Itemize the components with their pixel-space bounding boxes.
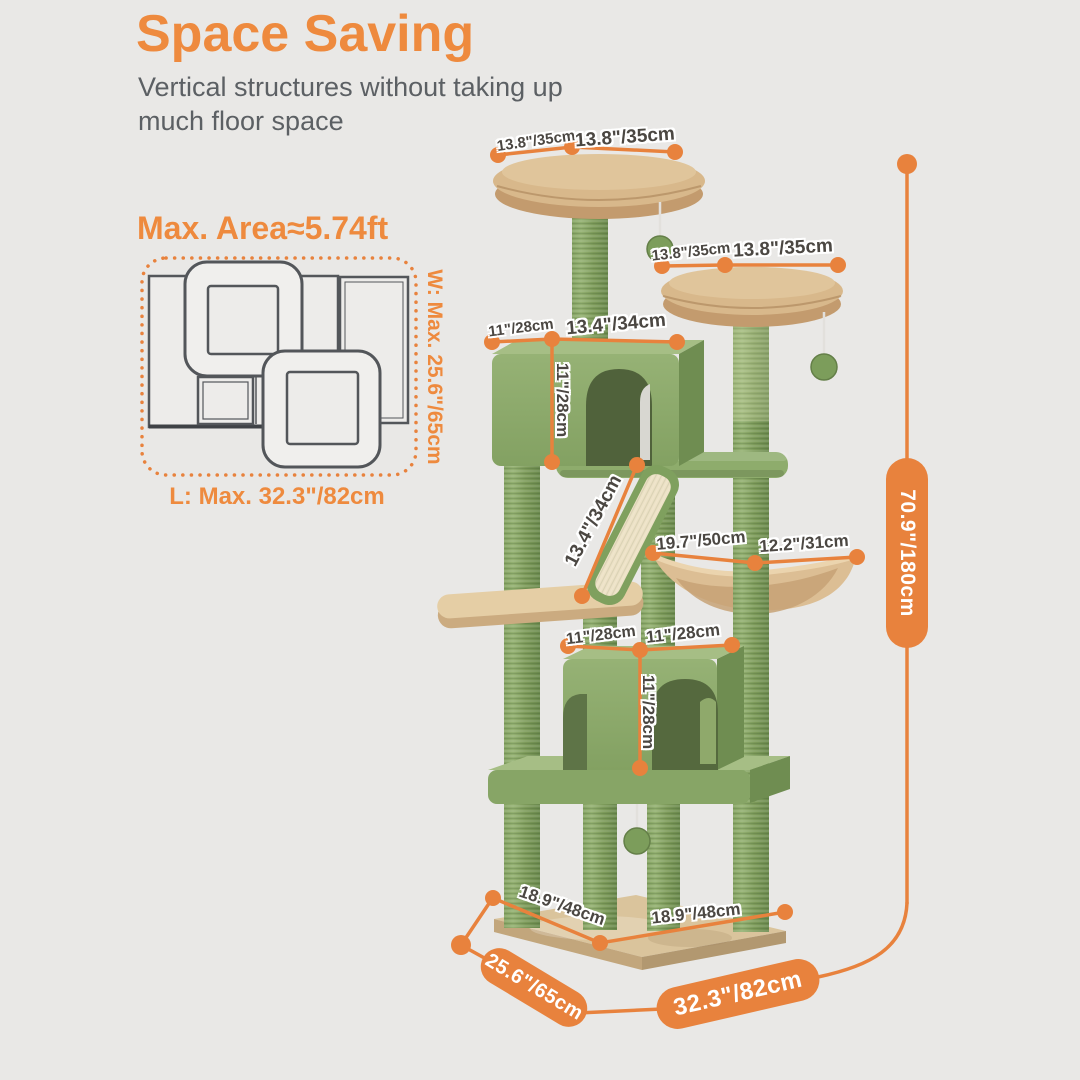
dim-label-lower-condo-height: 11"/28cm bbox=[638, 675, 658, 749]
hanging-ball-2 bbox=[811, 312, 837, 380]
page-title: Space Saving bbox=[136, 4, 474, 64]
footprint-width-label: W: Max. 25.6"/65cm bbox=[422, 269, 446, 464]
top-perch bbox=[493, 154, 705, 219]
infographic-canvas: Space Saving Vertical structures without… bbox=[0, 0, 1080, 1080]
upper-condo bbox=[492, 340, 704, 466]
max-area-title: Max. Area≈5.74ft bbox=[137, 210, 388, 247]
overall-height-badge: 70.9"/180cm bbox=[886, 458, 928, 648]
second-perch bbox=[661, 267, 843, 327]
hanging-ball-3 bbox=[624, 804, 650, 854]
footprint-length-label: L: Max. 32.3"/82cm bbox=[169, 483, 384, 511]
floorplan-diagram bbox=[140, 256, 418, 477]
page-subtitle: Vertical structures without taking up mu… bbox=[138, 70, 563, 138]
dim-label-upper-condo-height: 11"/28cm bbox=[552, 363, 572, 437]
